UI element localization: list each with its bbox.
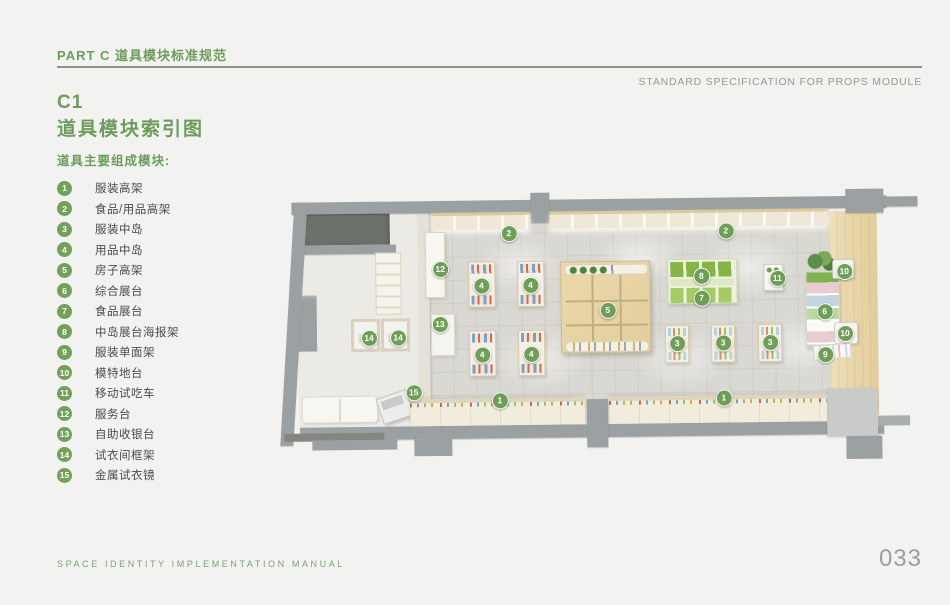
plan-marker-1: 1: [491, 392, 508, 409]
legend-item-13: 13自助收银台: [57, 424, 179, 445]
plan-marker-12: 12: [432, 260, 449, 277]
legend-item-9: 9服装单面架: [57, 342, 179, 363]
legend-number-badge: 15: [57, 468, 72, 483]
legend-label: 用品中岛: [95, 242, 143, 258]
legend-number-badge: 6: [57, 283, 72, 298]
legend-label: 服装高架: [95, 180, 143, 196]
plan-marker-9: 9: [817, 346, 834, 363]
plan-marker-3: 3: [715, 334, 732, 351]
legend-label: 自助收银台: [95, 426, 155, 442]
legend-label: 服务台: [95, 406, 131, 422]
legend-item-3: 3服装中岛: [57, 219, 179, 240]
plan-marker-3: 3: [762, 333, 779, 350]
legend-number-badge: 14: [57, 447, 72, 462]
legend-item-4: 4用品中岛: [57, 240, 179, 261]
header-rule: [57, 66, 922, 68]
legend-item-10: 10模特地台: [57, 363, 179, 384]
legend-label: 试衣间框架: [95, 447, 155, 463]
plan-marker-8: 8: [693, 267, 710, 284]
legend-item-14: 14试衣间框架: [57, 445, 179, 466]
plan-marker-4: 4: [474, 346, 491, 363]
legend-number-badge: 10: [57, 365, 72, 380]
legend-item-1: 1服装高架: [57, 178, 179, 199]
plan-marker-10: 10: [836, 262, 853, 279]
legend-label: 服装单面架: [95, 344, 155, 360]
section-code: C1: [57, 92, 83, 114]
plan-marker-2: 2: [500, 225, 517, 242]
legend-number-badge: 13: [57, 427, 72, 442]
plan-marker-14: 14: [360, 329, 377, 346]
plan-marker-7: 7: [693, 289, 710, 306]
legend-item-12: 12服务台: [57, 404, 179, 425]
section-title: 道具模块索引图: [57, 114, 204, 141]
legend-label: 中岛展台海报架: [95, 324, 179, 340]
plan-marker-5: 5: [599, 301, 616, 318]
plan-marker-3: 3: [669, 334, 686, 351]
plan-marker-6: 6: [816, 303, 833, 320]
footer-manual-name: SPACE IDENTITY IMPLEMENTATION MANUAL: [57, 559, 345, 569]
legend-number-badge: 3: [57, 222, 72, 237]
legend-label: 服装中岛: [95, 221, 143, 237]
legend-number-badge: 4: [57, 242, 72, 257]
part-title: PART C 道具模块标准规范: [57, 45, 227, 64]
plan-marker-1: 1: [715, 389, 732, 406]
legend-number-badge: 2: [57, 201, 72, 216]
legend-label: 食品展台: [95, 303, 143, 319]
legend-number-badge: 5: [57, 263, 72, 278]
plan-marker-11: 11: [769, 269, 786, 286]
legend-title: 道具主要组成模块:: [57, 150, 170, 169]
plan-marker-10: 10: [836, 324, 853, 341]
legend-item-6: 6综合展台: [57, 281, 179, 302]
legend-label: 房子高架: [95, 262, 143, 278]
plan-marker-4: 4: [522, 276, 539, 293]
legend-item-2: 2食品/用品高架: [57, 199, 179, 220]
legend-number-badge: 1: [57, 181, 72, 196]
legend-label: 金属试衣镜: [95, 467, 155, 483]
legend-number-badge: 11: [57, 386, 72, 401]
plan-marker-4: 4: [473, 277, 490, 294]
legend-item-15: 15金属试衣镜: [57, 465, 179, 486]
legend-item-8: 8中岛展台海报架: [57, 322, 179, 343]
plan-marker-2: 2: [717, 222, 734, 239]
legend-label: 食品/用品高架: [95, 201, 171, 217]
page-number: 033: [879, 545, 922, 573]
subtitle-english: STANDARD SPECIFICATION FOR PROPS MODULE: [639, 76, 922, 88]
manual-page: PART C 道具模块标准规范 STANDARD SPECIFICATION F…: [0, 0, 950, 605]
floor-plan: 22124481110756131414103334491511: [279, 188, 924, 476]
legend-item-5: 5房子高架: [57, 260, 179, 281]
plan-marker-13: 13: [431, 315, 448, 332]
plan-marker-4: 4: [523, 345, 540, 362]
legend-list: 1服装高架2食品/用品高架3服装中岛4用品中岛5房子高架6综合展台7食品展台8中…: [57, 178, 179, 486]
legend-item-11: 11移动试吃车: [57, 383, 179, 404]
plan-markers: 22124481110756131414103334491511: [279, 188, 924, 476]
plan-marker-14: 14: [389, 329, 406, 346]
legend-label: 模特地台: [95, 365, 143, 381]
legend-number-badge: 7: [57, 304, 72, 319]
legend-number-badge: 9: [57, 345, 72, 360]
legend-label: 综合展台: [95, 283, 143, 299]
legend-number-badge: 8: [57, 324, 72, 339]
legend-item-7: 7食品展台: [57, 301, 179, 322]
legend-label: 移动试吃车: [95, 385, 155, 401]
plan-marker-15: 15: [405, 384, 422, 401]
legend-number-badge: 12: [57, 406, 72, 421]
